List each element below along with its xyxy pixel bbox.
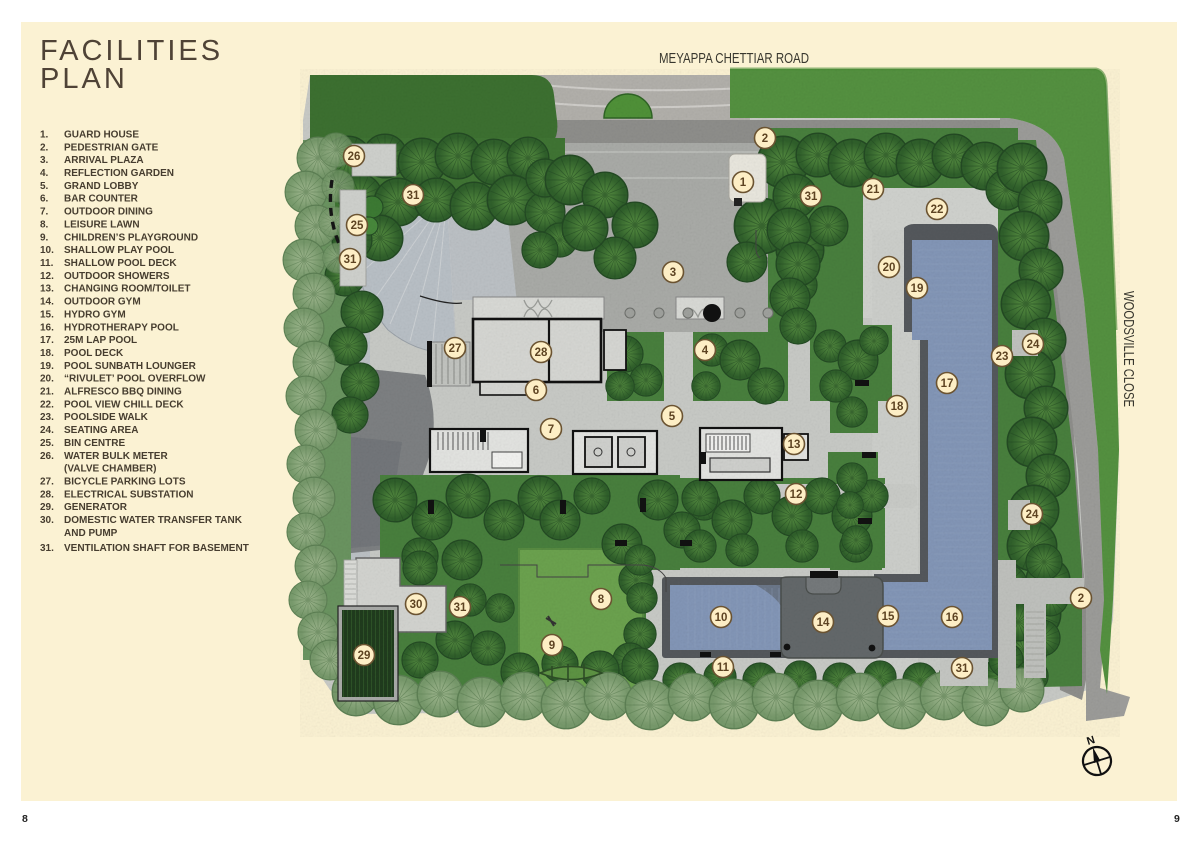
svg-text:REFLECTION GARDEN: REFLECTION GARDEN xyxy=(64,168,174,179)
svg-text:WOODSVILLE CLOSE: WOODSVILLE CLOSE xyxy=(1120,291,1137,407)
svg-text:ALFRESCO BBQ DINING: ALFRESCO BBQ DINING xyxy=(64,387,182,398)
svg-text:31: 31 xyxy=(454,602,467,614)
svg-text:1: 1 xyxy=(740,177,747,189)
svg-text:20.: 20. xyxy=(40,374,54,385)
svg-text:22.: 22. xyxy=(40,399,54,410)
svg-text:31: 31 xyxy=(805,191,818,203)
svg-text:30: 30 xyxy=(410,599,423,611)
svg-text:18.: 18. xyxy=(40,348,54,359)
svg-text:25M LAP POOL: 25M LAP POOL xyxy=(64,335,137,346)
svg-text:16: 16 xyxy=(946,612,959,624)
svg-text:8: 8 xyxy=(22,813,28,825)
svg-text:12.: 12. xyxy=(40,271,54,282)
svg-text:28: 28 xyxy=(535,347,548,359)
svg-text:GRAND LOBBY: GRAND LOBBY xyxy=(64,181,139,192)
svg-text:27: 27 xyxy=(449,343,462,355)
svg-text:3: 3 xyxy=(670,267,676,279)
svg-text:4: 4 xyxy=(702,345,709,357)
svg-text:POOL VIEW CHILL DECK: POOL VIEW CHILL DECK xyxy=(64,399,184,410)
svg-text:15.: 15. xyxy=(40,309,54,320)
svg-text:ARRIVAL PLAZA: ARRIVAL PLAZA xyxy=(64,155,144,166)
svg-text:POOL SUNBATH LOUNGER: POOL SUNBATH LOUNGER xyxy=(64,361,197,372)
svg-text:23.: 23. xyxy=(40,412,54,423)
svg-text:BIN CENTRE: BIN CENTRE xyxy=(64,438,125,449)
svg-text:23: 23 xyxy=(996,351,1009,363)
svg-text:SHALLOW PLAY POOL: SHALLOW PLAY POOL xyxy=(64,245,174,256)
svg-text:26: 26 xyxy=(348,151,361,163)
svg-text:9.: 9. xyxy=(40,232,49,243)
svg-text:24: 24 xyxy=(1027,339,1040,351)
svg-text:PEDESTRIAN GATE: PEDESTRIAN GATE xyxy=(64,142,159,153)
svg-text:12: 12 xyxy=(790,489,803,501)
svg-text:13: 13 xyxy=(788,439,801,451)
svg-text:8: 8 xyxy=(598,594,605,606)
svg-text:“RIVULET’ POOL OVERFLOW: “RIVULET’ POOL OVERFLOW xyxy=(64,374,206,385)
svg-text:31: 31 xyxy=(407,190,420,202)
svg-text:31: 31 xyxy=(956,663,969,675)
svg-text:OUTDOOR GYM: OUTDOOR GYM xyxy=(64,297,141,308)
svg-text:22: 22 xyxy=(931,204,944,216)
svg-text:VENTILATION SHAFT FOR BASEMENT: VENTILATION SHAFT FOR BASEMENT xyxy=(64,543,249,554)
svg-text:PLAN: PLAN xyxy=(40,63,128,95)
svg-text:GENERATOR: GENERATOR xyxy=(64,502,128,513)
svg-text:SEATING AREA: SEATING AREA xyxy=(64,425,138,436)
svg-text:SHALLOW POOL DECK: SHALLOW POOL DECK xyxy=(64,258,177,269)
svg-text:LEISURE LAWN: LEISURE LAWN xyxy=(64,219,140,230)
svg-text:7: 7 xyxy=(548,424,554,436)
svg-text:31.: 31. xyxy=(40,543,54,554)
svg-text:14.: 14. xyxy=(40,297,54,308)
svg-text:11.: 11. xyxy=(40,258,54,269)
svg-text:24: 24 xyxy=(1026,509,1039,521)
svg-text:30.: 30. xyxy=(40,515,54,526)
svg-text:OUTDOOR DINING: OUTDOOR DINING xyxy=(64,207,153,218)
svg-text:10.: 10. xyxy=(40,245,54,256)
svg-text:HYDRO GYM: HYDRO GYM xyxy=(64,309,126,320)
svg-text:7.: 7. xyxy=(40,207,49,218)
svg-text:19: 19 xyxy=(911,283,924,295)
svg-text:26.: 26. xyxy=(40,451,54,462)
svg-text:5: 5 xyxy=(669,411,676,423)
svg-text:POOL DECK: POOL DECK xyxy=(64,348,124,359)
svg-text:17: 17 xyxy=(941,378,954,390)
svg-text:27.: 27. xyxy=(40,477,54,488)
svg-text:ELECTRICAL SUBSTATION: ELECTRICAL SUBSTATION xyxy=(64,489,193,500)
svg-text:11: 11 xyxy=(717,662,730,674)
svg-text:GUARD HOUSE: GUARD HOUSE xyxy=(64,130,139,141)
svg-text:DOMESTIC WATER TRANSFER TANK: DOMESTIC WATER TRANSFER TANK xyxy=(64,515,243,526)
svg-text:2: 2 xyxy=(1078,593,1084,605)
svg-text:5.: 5. xyxy=(40,181,49,192)
svg-text:24.: 24. xyxy=(40,425,54,436)
svg-text:28.: 28. xyxy=(40,489,54,500)
svg-text:19.: 19. xyxy=(40,361,54,372)
svg-text:BAR COUNTER: BAR COUNTER xyxy=(64,194,139,205)
svg-text:21: 21 xyxy=(867,184,880,196)
svg-text:6: 6 xyxy=(533,385,539,397)
svg-text:13.: 13. xyxy=(40,284,54,295)
svg-text:BICYCLE PARKING LOTS: BICYCLE PARKING LOTS xyxy=(64,477,186,488)
svg-text:31: 31 xyxy=(344,254,357,266)
svg-text:2: 2 xyxy=(762,133,768,145)
svg-text:16.: 16. xyxy=(40,322,54,333)
svg-text:HYDROTHERAPY POOL: HYDROTHERAPY POOL xyxy=(64,322,179,333)
svg-text:9: 9 xyxy=(1174,813,1180,825)
svg-text:POOLSIDE WALK: POOLSIDE WALK xyxy=(64,412,149,423)
svg-text:29.: 29. xyxy=(40,502,54,513)
svg-text:MEYAPPA CHETTIAR ROAD: MEYAPPA CHETTIAR ROAD xyxy=(659,50,809,67)
svg-text:18: 18 xyxy=(891,401,904,413)
svg-text:CHANGING ROOM/TOILET: CHANGING ROOM/TOILET xyxy=(64,284,190,295)
svg-text:1.: 1. xyxy=(40,130,49,141)
svg-text:6.: 6. xyxy=(40,194,49,205)
svg-text:4.: 4. xyxy=(40,168,49,179)
svg-text:25.: 25. xyxy=(40,438,54,449)
svg-text:(VALVE CHAMBER): (VALVE CHAMBER) xyxy=(64,464,156,475)
svg-text:CHILDREN’S PLAYGROUND: CHILDREN’S PLAYGROUND xyxy=(64,232,198,243)
svg-text:25: 25 xyxy=(351,220,364,232)
svg-text:AND PUMP: AND PUMP xyxy=(64,528,118,539)
svg-text:10: 10 xyxy=(715,612,728,624)
svg-text:14: 14 xyxy=(817,617,830,629)
svg-text:3.: 3. xyxy=(40,155,49,166)
svg-text:8.: 8. xyxy=(40,219,49,230)
svg-text:9: 9 xyxy=(549,640,555,652)
svg-text:15: 15 xyxy=(882,611,895,623)
svg-text:2.: 2. xyxy=(40,142,49,153)
svg-text:WATER BULK METER: WATER BULK METER xyxy=(64,451,168,462)
svg-text:OUTDOOR SHOWERS: OUTDOOR SHOWERS xyxy=(64,271,170,282)
svg-text:17.: 17. xyxy=(40,335,54,346)
svg-text:29: 29 xyxy=(358,650,371,662)
svg-text:21.: 21. xyxy=(40,387,54,398)
svg-text:20: 20 xyxy=(883,262,896,274)
